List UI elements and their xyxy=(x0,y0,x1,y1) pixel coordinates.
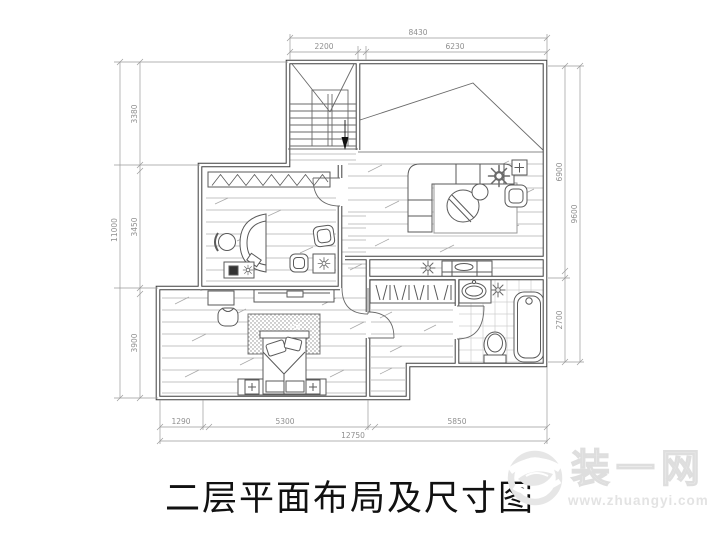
dim-label: 9600 xyxy=(570,204,579,223)
dimensions xyxy=(114,34,584,444)
dresser-handle xyxy=(287,291,303,297)
dim-label: 2200 xyxy=(314,42,333,51)
dim-label: 2700 xyxy=(555,310,564,329)
office-chair xyxy=(219,234,236,251)
cabinet-dark-item xyxy=(229,266,238,275)
bed-foot-drawer-2 xyxy=(286,381,304,392)
armchair-seat xyxy=(509,189,523,203)
dim-label: 11000 xyxy=(110,218,119,242)
bathroom-door xyxy=(457,306,484,339)
watermark-text: 装一网 www.zhuangyi.com xyxy=(568,449,709,508)
bedroom-small-table xyxy=(208,291,234,305)
dim-label: 3900 xyxy=(130,333,139,352)
bed-foot-drawer-1 xyxy=(266,381,284,392)
cabinet-dish xyxy=(455,264,473,271)
bathtub-faucet xyxy=(526,298,532,304)
dim-label: 6900 xyxy=(555,162,564,181)
floor-plan-page: 8430 2200 6230 6900 2700 9600 3380 3450 … xyxy=(0,0,720,546)
guest-chair-1 xyxy=(313,225,336,248)
sloped-roof-void xyxy=(358,83,543,152)
dim-label: 3380 xyxy=(130,104,139,123)
stair-flight-lines xyxy=(292,64,354,112)
brand-name: 装一网 xyxy=(571,449,706,492)
toilet-tank xyxy=(484,355,506,363)
walk-in-closet xyxy=(370,280,457,303)
landing-steps xyxy=(290,154,356,160)
closet-floor-planks xyxy=(371,310,453,391)
study xyxy=(208,172,335,278)
stool xyxy=(218,308,238,326)
dim-label: 8430 xyxy=(408,28,427,37)
brand-url: www.zhuangyi.com xyxy=(568,493,709,508)
corridor-floor-planks xyxy=(342,216,366,276)
dim-label: 6230 xyxy=(445,42,464,51)
sofa-plant xyxy=(489,166,510,187)
staircase xyxy=(288,64,358,150)
closet-hatch-band xyxy=(208,172,330,187)
living-area xyxy=(408,160,527,233)
watermark: 装一网 www.zhuangyi.com xyxy=(506,449,712,509)
bathtub-inner xyxy=(518,296,541,358)
dim-label: 5300 xyxy=(275,417,294,426)
bench-speaker-2 xyxy=(306,380,320,394)
brand-logo-icon xyxy=(506,449,564,509)
dim-label: 12750 xyxy=(341,431,365,440)
side-round-table xyxy=(472,184,488,200)
dim-label: 5850 xyxy=(447,417,466,426)
hallway xyxy=(421,261,492,277)
guest-chair-2 xyxy=(290,254,308,272)
headboard xyxy=(260,331,309,338)
stair-down-arrow xyxy=(342,137,349,150)
dim-label: 3450 xyxy=(130,217,139,236)
page-title: 二层平面布局及尺寸图 xyxy=(150,470,550,521)
sink-basin-inner xyxy=(466,286,483,296)
bathroom xyxy=(459,279,544,363)
sink-faucet xyxy=(472,280,475,283)
dim-label: 1290 xyxy=(171,417,190,426)
bedroom xyxy=(208,289,334,395)
stair-stringer xyxy=(328,94,332,146)
study-side-table xyxy=(313,254,335,273)
office-chair-back xyxy=(215,233,218,251)
bench-speaker-1 xyxy=(245,380,259,394)
toilet-seat xyxy=(488,334,503,352)
